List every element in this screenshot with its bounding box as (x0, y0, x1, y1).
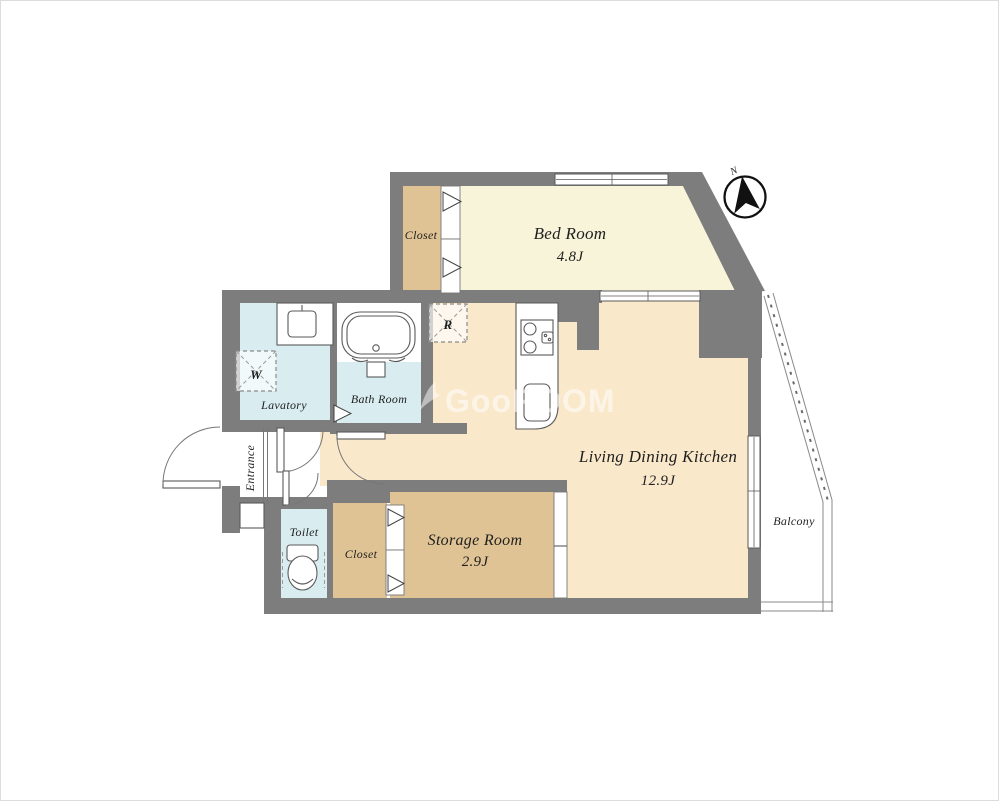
lower-closet-sliding-door (386, 505, 404, 595)
bedroom-closet-label: Closet (405, 228, 438, 242)
wall-top-mid (222, 290, 602, 303)
lower-closet-label: Closet (345, 547, 378, 561)
wall-kitchen-step1 (557, 303, 599, 322)
window-ldk-right (748, 436, 760, 548)
storage-label: Storage Room (428, 532, 523, 549)
entrance-porch-step (240, 503, 264, 528)
compass-icon: N (725, 165, 766, 218)
entrance-label: Entrance (243, 444, 257, 492)
window-bedroom-top (555, 174, 668, 185)
balcony-railing (761, 293, 833, 612)
bedroom-label: Bed Room (534, 224, 607, 243)
entrance-divider (264, 428, 268, 505)
balcony-label: Balcony (773, 514, 815, 528)
bedroom-area-label: 4.8J (557, 249, 585, 265)
wall-kitchen-step2 (577, 322, 599, 350)
toilet-label: Toilet (290, 525, 319, 539)
storage-sliding-door (554, 492, 567, 598)
hall-door (277, 428, 323, 472)
window-bedroom-ldk (600, 291, 700, 301)
fridge-marker-label: R (443, 317, 453, 332)
storage-area-label: 2.9J (462, 554, 490, 570)
floorplan-image: Bed Room 4.8J Closet Living Dining Kitch… (0, 0, 999, 801)
wall-storage-top (380, 480, 566, 492)
bath-label: Bath Room (351, 392, 407, 406)
compass-north-label: N (728, 165, 741, 179)
bedroom-closet-sliding-door (441, 186, 461, 293)
wall-block (699, 290, 762, 358)
entrance-door (163, 427, 220, 488)
wall-left-stub (222, 486, 240, 533)
wall (327, 503, 333, 598)
lavatory-label: Lavatory (260, 398, 307, 412)
washer-marker-label: W (250, 367, 263, 382)
wall (390, 172, 403, 303)
ldk-area-label: 12.9J (641, 473, 676, 489)
wall-left-lower (264, 497, 281, 614)
lavatory-sink-icon (277, 303, 333, 345)
stove-icon (521, 320, 553, 355)
watermark: GooROOM (420, 382, 616, 419)
watermark-text: GooROOM (445, 383, 616, 419)
ldk-label: Living Dining Kitchen (578, 447, 737, 466)
wall-bottom (264, 598, 761, 614)
